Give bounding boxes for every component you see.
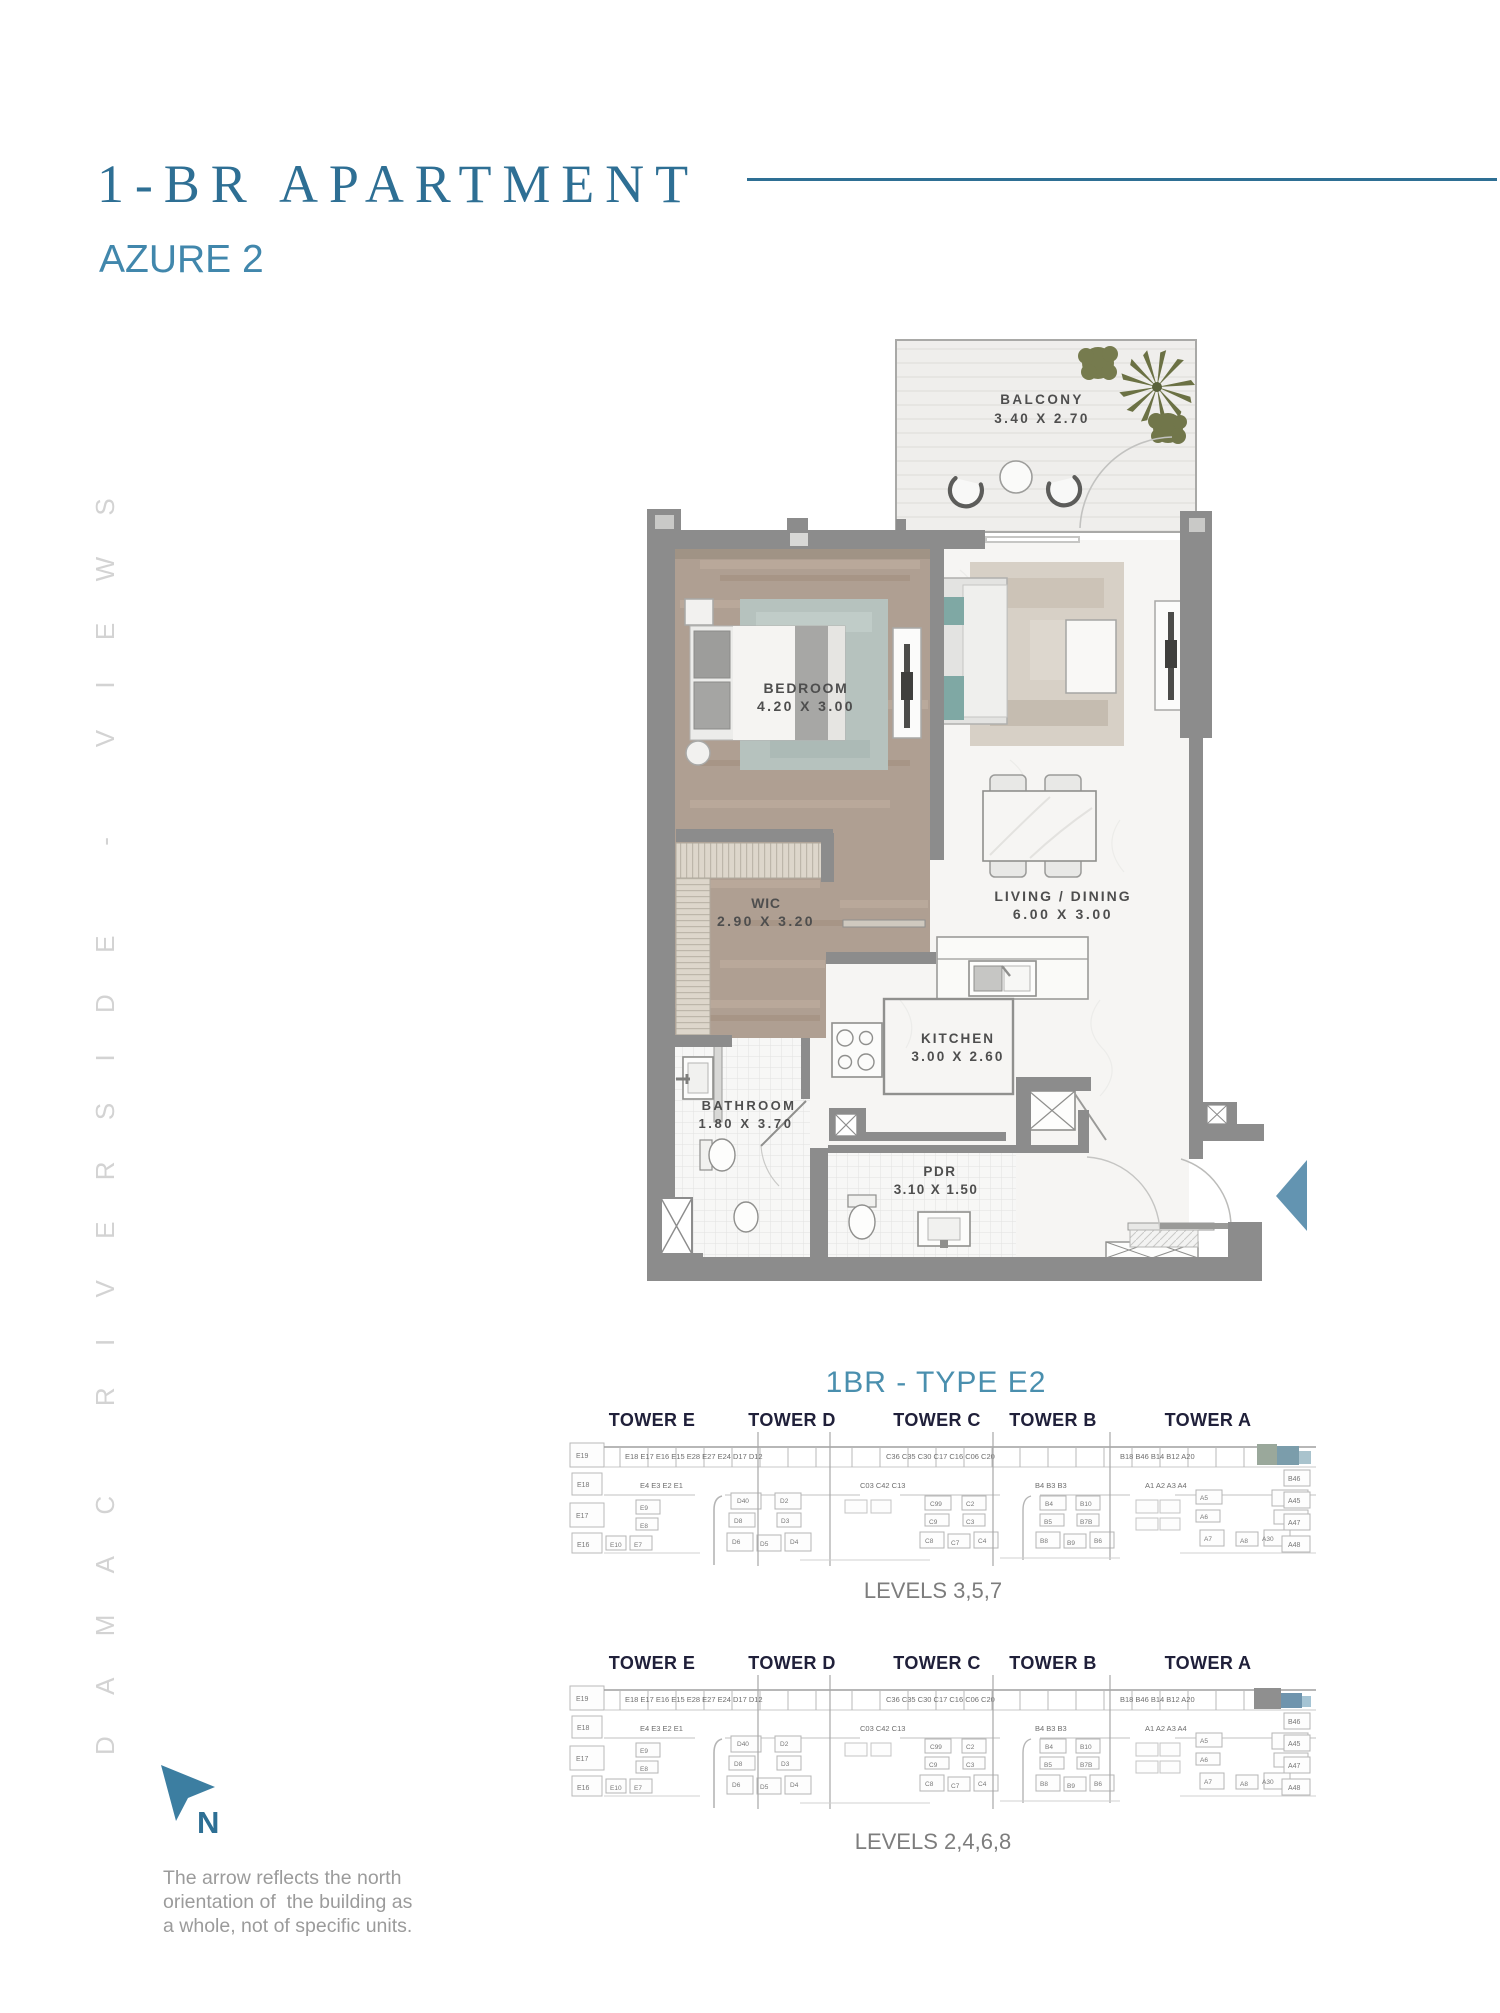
svg-text:3.40 X 2.70: 3.40 X 2.70 <box>994 411 1089 426</box>
svg-text:LEVELS 2,4,6,8: LEVELS 2,4,6,8 <box>855 1829 1012 1854</box>
svg-text:TOWER B: TOWER B <box>1009 1410 1096 1430</box>
svg-text:TOWER C: TOWER C <box>893 1410 980 1430</box>
svg-text:LEVELS 3,5,7: LEVELS 3,5,7 <box>864 1578 1002 1603</box>
svg-text:3.10 X 1.50: 3.10 X 1.50 <box>894 1182 978 1197</box>
svg-text:TOWER A: TOWER A <box>1165 1410 1252 1430</box>
svg-text:6.00 X 3.00: 6.00 X 3.00 <box>1013 906 1113 922</box>
svg-text:TOWER D: TOWER D <box>748 1410 835 1430</box>
svg-text:BATHROOM: BATHROOM <box>702 1098 797 1113</box>
svg-text:TOWER A: TOWER A <box>1165 1653 1252 1673</box>
svg-text:N: N <box>197 1805 219 1840</box>
svg-text:2.90 X 3.20: 2.90 X 3.20 <box>717 913 815 929</box>
svg-text:AZURE 2: AZURE 2 <box>99 238 264 281</box>
svg-text:WIC: WIC <box>751 895 781 911</box>
svg-text:PDR: PDR <box>923 1164 956 1179</box>
svg-text:LIVING / DINING: LIVING / DINING <box>994 888 1131 904</box>
svg-text:3.00 X 2.60: 3.00 X 2.60 <box>911 1049 1004 1064</box>
svg-text:TOWER C: TOWER C <box>893 1653 980 1673</box>
svg-text:1BR - TYPE E2: 1BR - TYPE E2 <box>826 1366 1047 1399</box>
svg-text:BALCONY: BALCONY <box>1000 392 1084 407</box>
svg-text:TOWER D: TOWER D <box>748 1653 835 1673</box>
svg-text:1.80 X 3.70: 1.80 X 3.70 <box>698 1116 793 1131</box>
svg-text:4.20 X 3.00: 4.20 X 3.00 <box>757 698 855 714</box>
svg-text:BEDROOM: BEDROOM <box>763 680 848 696</box>
svg-text:orientation of the building a: orientation of the building as <box>163 1891 413 1913</box>
svg-text:a whole, not of specific units: a whole, not of specific units. <box>163 1915 412 1937</box>
svg-text:KITCHEN: KITCHEN <box>921 1031 995 1046</box>
svg-text:The arrow reflects the north: The arrow reflects the north <box>163 1867 401 1889</box>
svg-text:TOWER E: TOWER E <box>609 1653 695 1673</box>
svg-text:DAMAC RIVERSIDE - VIEWS: DAMAC RIVERSIDE - VIEWS <box>90 457 120 1755</box>
svg-text:1-BR APARTMENT: 1-BR APARTMENT <box>97 154 699 214</box>
svg-text:TOWER E: TOWER E <box>609 1410 695 1430</box>
svg-text:TOWER B: TOWER B <box>1009 1653 1096 1673</box>
